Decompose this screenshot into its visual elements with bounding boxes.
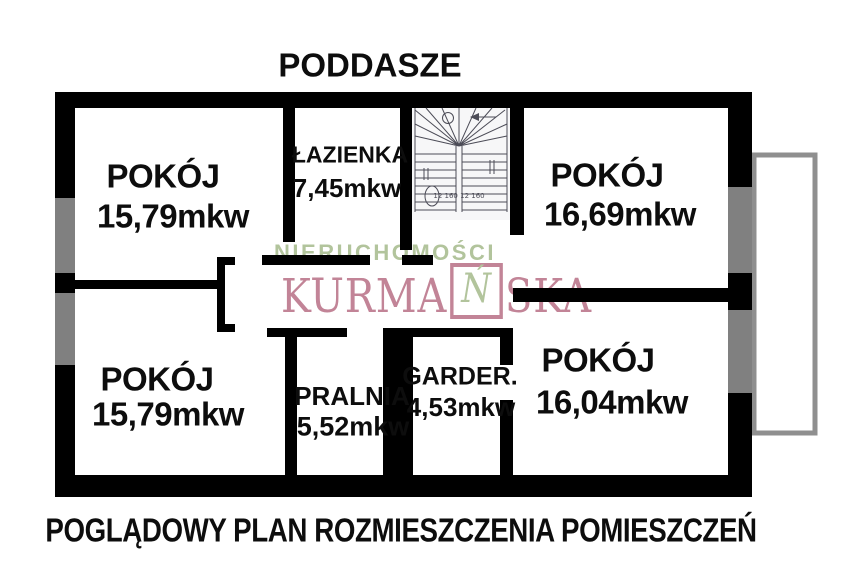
room-area-pokoj-bottom-right: 16,04mkw [536,386,688,419]
room-area-pralnia: 5,52mkw [297,414,410,441]
plan-caption: POGLĄDOWY PLAN ROZMIESZCZENIA POMIESZCZE… [45,514,756,547]
room-name-pokoj-bottom-left: POKÓJ [100,363,213,396]
room-name-pokoj-bottom-right: POKÓJ [541,344,654,377]
room-area-pokoj-bottom-left: 15,79mkw [92,398,244,431]
room-name-pokoj-top-right: POKÓJ [550,159,663,192]
room-name-lazienka: ŁAZIENKA [292,144,408,167]
room-area-pokoj-top-left: 15,79mkw [97,200,249,233]
room-name-pralnia: PRALNIA [294,383,410,409]
room-name-pokoj-top-left: POKÓJ [106,160,219,193]
room-area-pokoj-top-right: 16,69mkw [544,198,696,231]
room-area-lazienka: 7,45mkw [293,175,401,201]
labels: PODDASZE POKÓJ 15,79mkw ŁAZIENKA 7,45mkw… [0,0,851,565]
room-area-garderoba: 4,53mkw [407,394,515,420]
room-name-garderoba: GARDER. [402,365,517,390]
floor-title: PODDASZE [278,49,461,82]
floorplan: NIERUCHOMOŚCI KURMA Ń SKA [0,0,851,565]
